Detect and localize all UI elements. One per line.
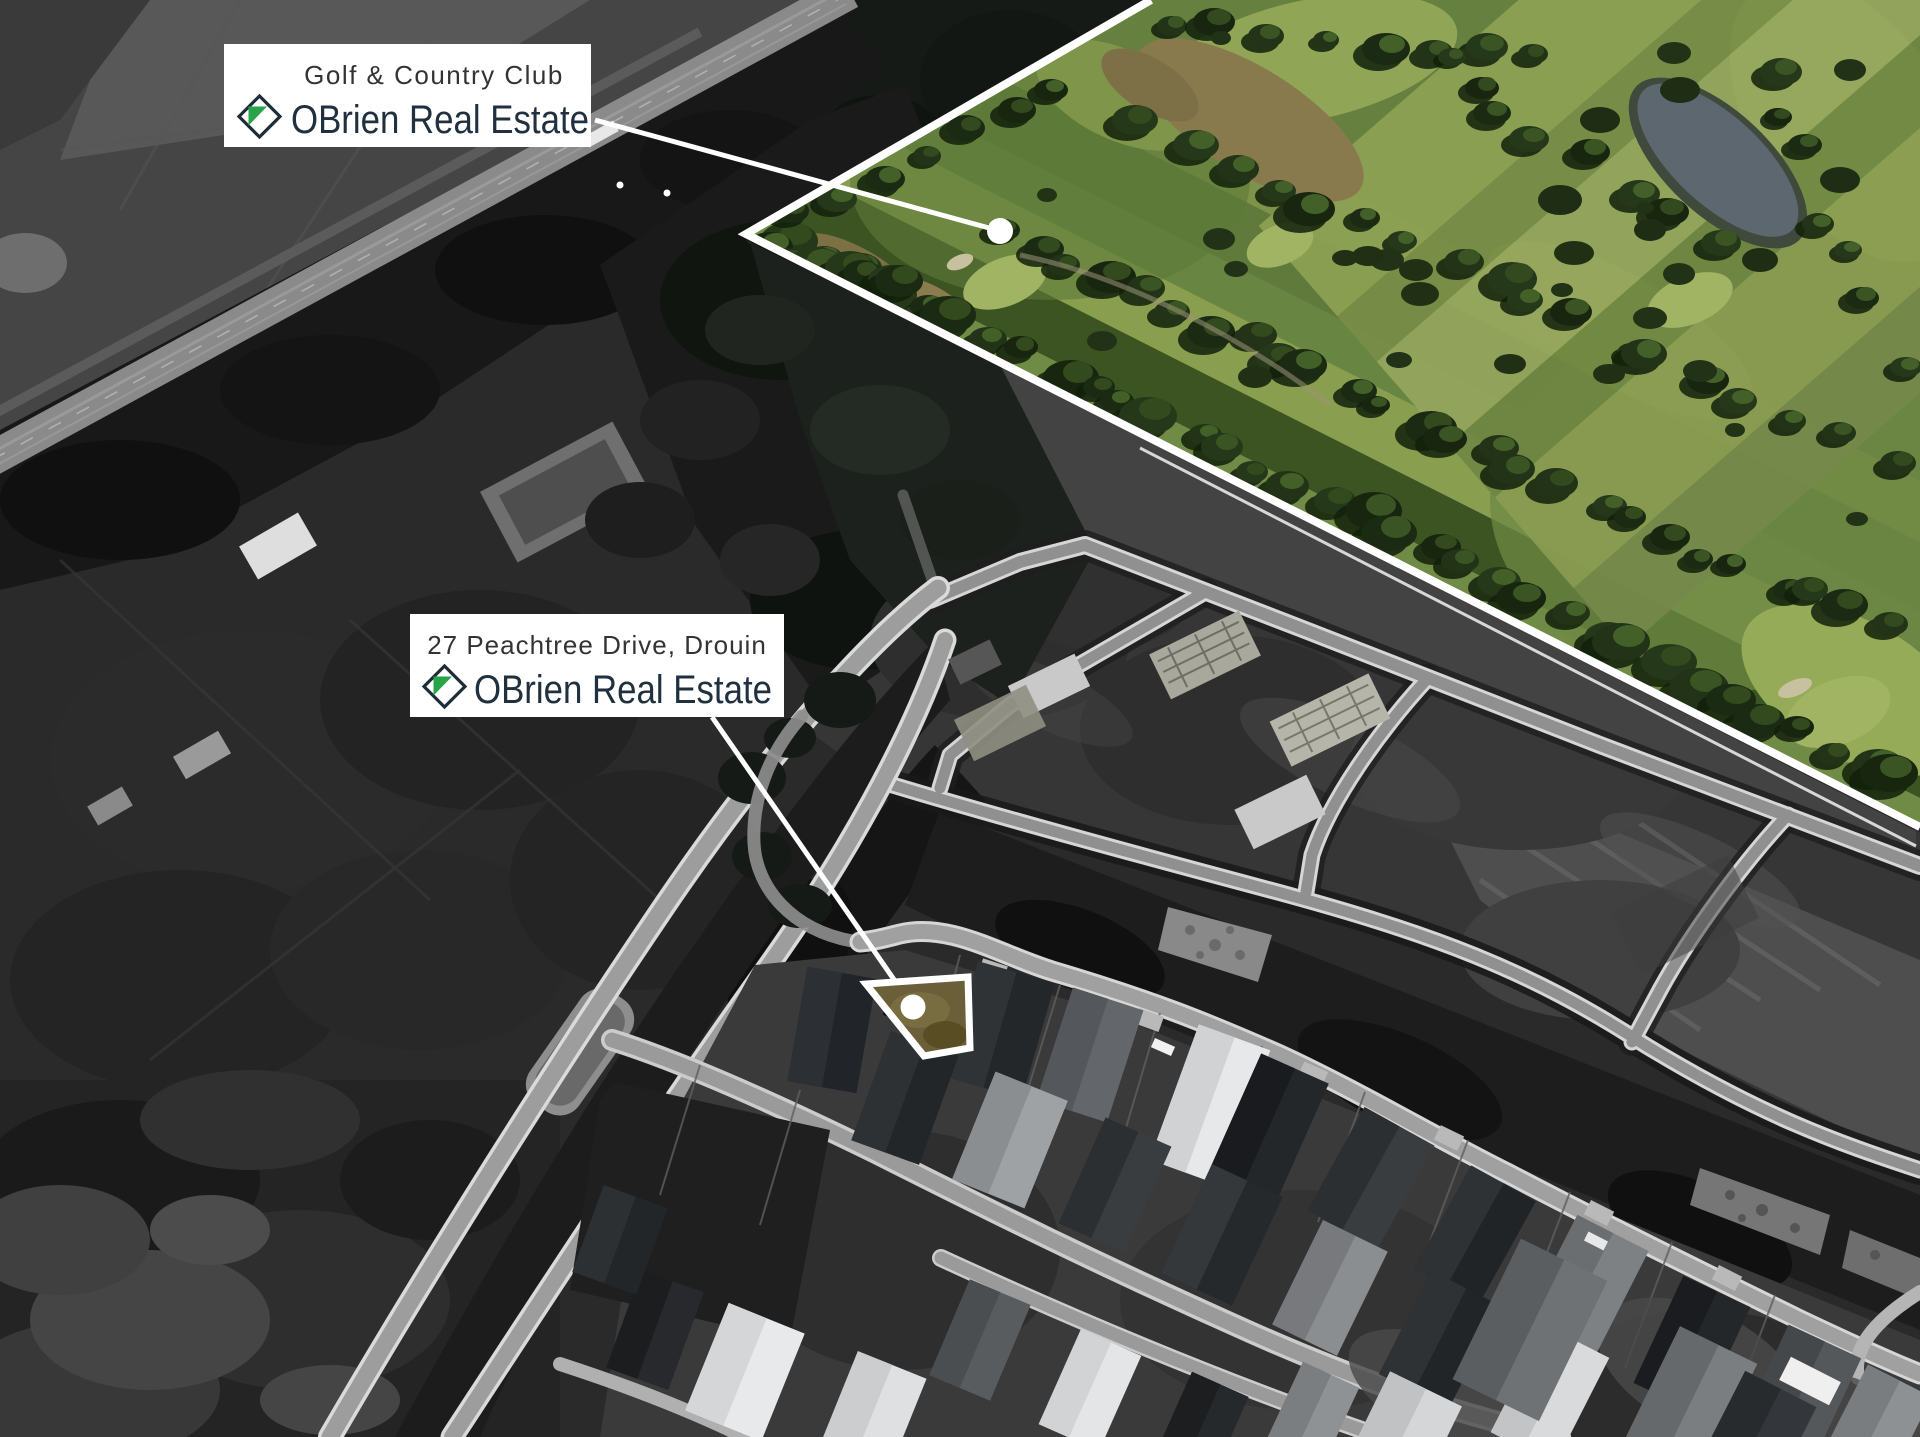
- svg-text:27 Peachtree Drive, Drouin: 27 Peachtree Drive, Drouin: [427, 630, 767, 660]
- svg-text:Golf & Country Club: Golf & Country Club: [304, 60, 564, 90]
- svg-text:OBrien Real Estate: OBrien Real Estate: [474, 668, 772, 712]
- svg-text:OBrien Real Estate: OBrien Real Estate: [291, 98, 589, 142]
